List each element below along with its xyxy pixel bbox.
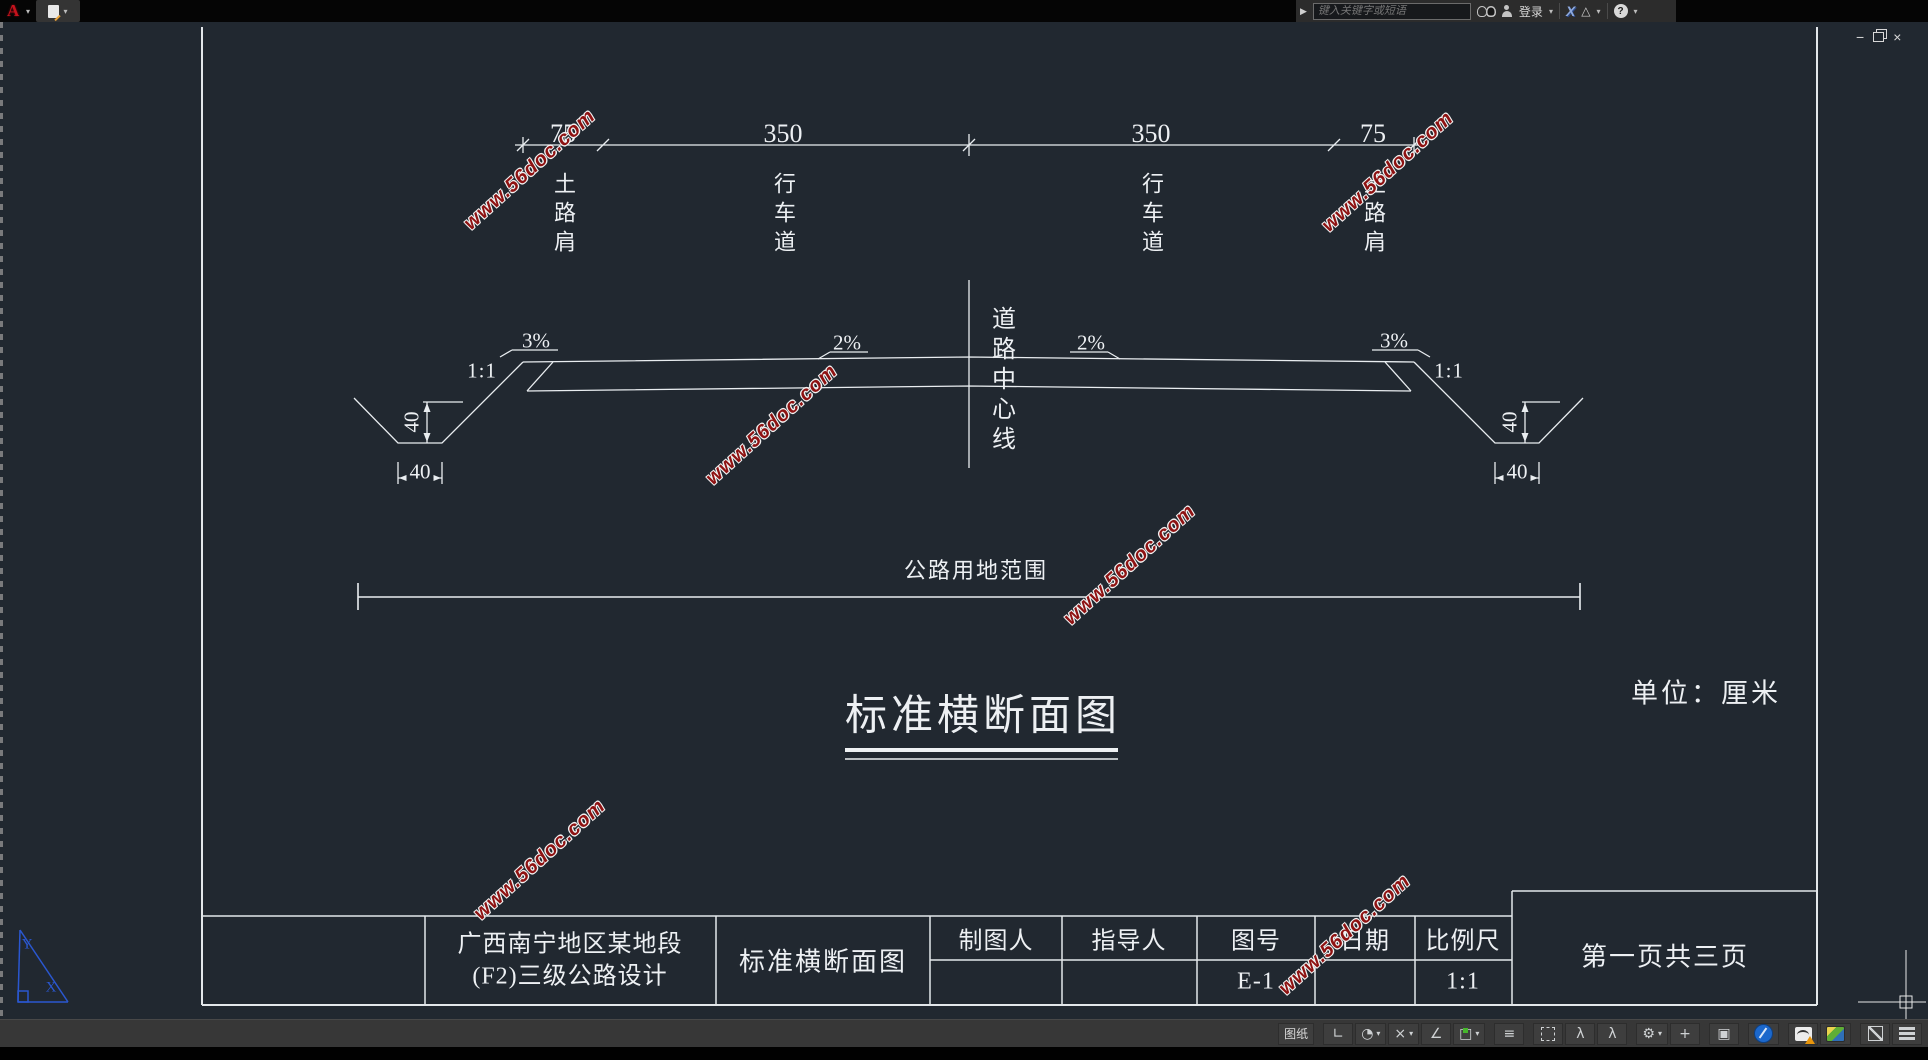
autocad-window: A ▾ ▾ ▶ 登录 ▾ X △ ▾ ? ▾ − × <box>0 0 1928 1060</box>
lineweight-icon: ≡ <box>1504 1027 1516 1041</box>
slope-right-lane: 2% <box>1077 331 1105 356</box>
save-file-icon[interactable] <box>48 5 59 18</box>
titleblock-sheetno-value: E-1 <box>1237 969 1275 996</box>
chevron-down-icon[interactable]: ▾ <box>1376 1029 1380 1038</box>
gear-icon: ⚙ <box>1642 1027 1655 1041</box>
titleblock-scale-value: 1:1 <box>1446 969 1480 996</box>
ditch-depth-right: 40 <box>1498 412 1523 433</box>
graphics-performance-icon <box>1754 1024 1773 1043</box>
slope-ratio-left: 1:1 <box>467 359 497 384</box>
titleblock-advisor-label: 指导人 <box>1092 921 1167 956</box>
ditch-depth-left: 40 <box>400 412 425 433</box>
label-left-shoulder: 土路肩 <box>547 172 579 259</box>
ucs-x-label: X <box>46 980 57 997</box>
hamburger-menu-icon <box>1899 1027 1915 1030</box>
performance-tuner-button[interactable] <box>1820 1023 1851 1045</box>
search-input[interactable] <box>1313 3 1471 20</box>
quick-access-toolbar[interactable]: ▾ <box>36 0 80 22</box>
restore-button[interactable] <box>1873 32 1884 42</box>
dim-right-shoulder-width: 75 <box>1360 119 1386 149</box>
dim-right-lane-width: 350 <box>1132 119 1171 149</box>
angle-snap-button[interactable]: ∠ <box>1421 1023 1451 1045</box>
paper-space-label: 图纸 <box>1284 1027 1308 1041</box>
titleblock-page-note: 第一页共三页 <box>1581 937 1749 974</box>
infocenter-toolbar: ▶ 登录 ▾ X △ ▾ ? ▾ <box>1296 0 1676 22</box>
dim-left-lane-width: 350 <box>764 119 803 149</box>
clean-screen-button[interactable] <box>1860 1023 1890 1045</box>
search-icon[interactable] <box>1477 6 1487 17</box>
document-window-controls: − × <box>1856 29 1901 45</box>
hardware-acceleration-icon <box>1795 1027 1812 1041</box>
logo-dropdown-icon[interactable]: ▾ <box>26 7 30 16</box>
signin-dropdown-icon[interactable]: ▾ <box>1549 7 1553 16</box>
help-icon[interactable]: ? <box>1614 4 1628 18</box>
annotation-visibility-button[interactable]: λ <box>1565 1023 1595 1045</box>
label-right-lane: 行车道 <box>1135 172 1167 259</box>
user-icon <box>1501 5 1513 17</box>
minimize-button[interactable]: − <box>1856 29 1864 45</box>
autocad-logo-icon[interactable]: A <box>7 1 19 21</box>
lineweight-button[interactable]: ≡ <box>1494 1023 1524 1045</box>
hardware-acceleration-button[interactable] <box>1788 1023 1818 1045</box>
titleblock-scale-label: 比例尺 <box>1426 921 1501 956</box>
title-bar: A ▾ ▾ ▶ 登录 ▾ X △ ▾ ? ▾ <box>0 0 1928 22</box>
angle-icon: ∠ <box>1430 1027 1443 1041</box>
paper-space-button[interactable]: 图纸 <box>1278 1023 1314 1045</box>
slope-ratio-right: 1:1 <box>1434 359 1464 384</box>
ortho-button[interactable]: ∟ <box>1323 1023 1353 1045</box>
slope-left-shoulder: 3% <box>522 329 550 354</box>
titleblock-sheetno-label: 图号 <box>1231 921 1281 956</box>
slope-left-lane: 2% <box>833 331 861 356</box>
selection-cycling-icon <box>1541 1027 1555 1041</box>
help-dropdown-icon[interactable]: ▾ <box>1634 7 1638 16</box>
isolate-objects-icon: ▣ <box>1717 1027 1730 1041</box>
isodraft-button[interactable]: ◔▾ <box>1355 1023 1386 1045</box>
quick-access-dropdown-icon[interactable]: ▾ <box>63 7 67 16</box>
exchange-apps-icon[interactable]: X <box>1566 3 1575 19</box>
drawing-title: 标准横断面图 <box>845 682 1121 743</box>
cad-linework <box>0 22 1928 1019</box>
divider <box>1607 3 1608 19</box>
expand-icon <box>1868 1026 1883 1041</box>
snap-tracking-icon: × <box>1394 1027 1406 1041</box>
windows-taskbar[interactable] <box>0 1047 1928 1060</box>
autodesk360-icon[interactable]: △ <box>1581 4 1590 18</box>
ortho-icon: ∟ <box>1332 1027 1344 1041</box>
selection-cycling-button[interactable] <box>1533 1023 1563 1045</box>
annotation-autoscale-button[interactable]: λ <box>1597 1023 1627 1045</box>
osnap-marker-icon <box>1463 1028 1468 1033</box>
label-road-centerline: 道路中心线 <box>984 306 1019 456</box>
close-button[interactable]: × <box>1893 29 1901 45</box>
a360-dropdown-icon[interactable]: ▾ <box>1597 7 1601 16</box>
ucs-y-label: Y <box>22 937 33 954</box>
ditch-width-left: 40 <box>407 460 434 485</box>
drawing-canvas[interactable]: 75 350 350 75 土路肩 行车道 行车道 土路肩 道路中心线 3% 2… <box>0 22 1928 1019</box>
object-snap-button[interactable]: □▾ <box>1453 1023 1485 1045</box>
chevron-down-icon[interactable]: ▾ <box>1475 1029 1479 1038</box>
isodraft-icon: ◔ <box>1361 1027 1373 1041</box>
annotation-scale-button[interactable]: ⚙▾ <box>1636 1023 1668 1045</box>
snap-tracking-button[interactable]: ×▾ <box>1388 1023 1419 1045</box>
titleblock-project-line2: (F2)三级公路设计 <box>472 956 667 991</box>
isolate-objects-button[interactable]: ▣ <box>1709 1023 1739 1045</box>
plus-icon: + <box>1679 1027 1691 1041</box>
divider <box>1559 3 1560 19</box>
customization-button[interactable] <box>1892 1023 1922 1045</box>
titleblock-drawing-name: 标准横断面图 <box>739 942 907 979</box>
annotation-visibility-icon: λ <box>1576 1027 1584 1041</box>
unit-note: 单位：厘米 <box>1631 672 1781 711</box>
performance-tuner-icon <box>1826 1026 1845 1042</box>
chevron-down-icon[interactable]: ▾ <box>1658 1029 1662 1038</box>
status-bar: 图纸 ∟ ◔▾ ×▾ ∠ □▾ ≡ λ λ ⚙▾ + ▣ <box>0 1019 1928 1047</box>
chevron-down-icon[interactable]: ▾ <box>1409 1029 1413 1038</box>
ditch-width-right: 40 <box>1504 460 1531 485</box>
label-left-lane: 行车道 <box>767 172 799 259</box>
sign-in-button[interactable]: 登录 <box>1519 3 1543 20</box>
titleblock-project-line1: 广西南宁地区某地段 <box>458 924 683 959</box>
add-scale-button[interactable]: + <box>1670 1023 1700 1045</box>
graphics-performance-button[interactable] <box>1748 1023 1779 1045</box>
annotation-autoscale-icon: λ <box>1608 1027 1616 1041</box>
infocenter-collapse-icon[interactable]: ▶ <box>1300 6 1307 17</box>
label-highway-landuse-extent: 公路用地范围 <box>904 553 1048 585</box>
slope-right-shoulder: 3% <box>1380 329 1408 354</box>
titleblock-drafter-label: 制图人 <box>959 921 1034 956</box>
